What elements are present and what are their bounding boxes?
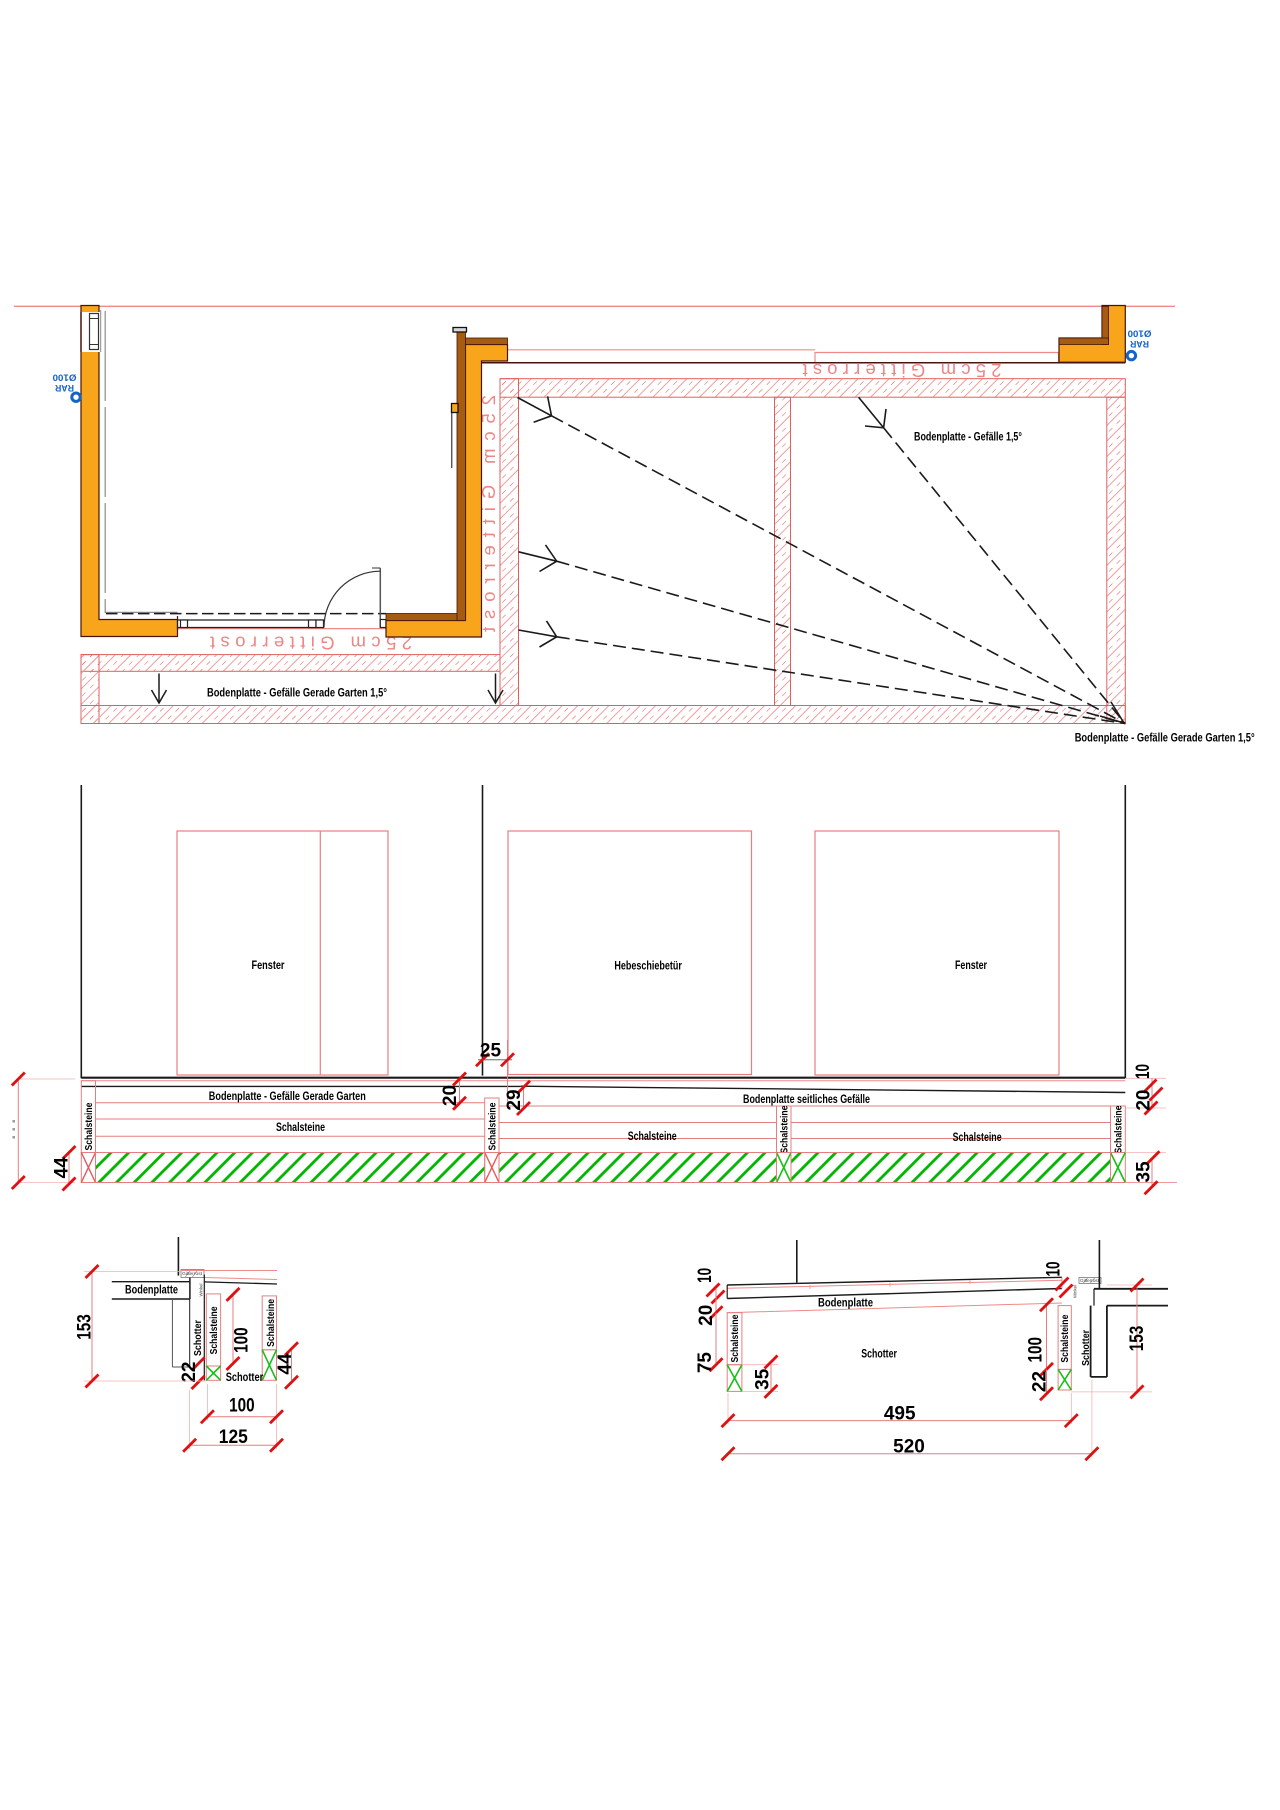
svg-text:Schalsteine: Schalsteine (208, 1306, 220, 1354)
svg-text:20: 20 (440, 1085, 461, 1106)
svg-text:20: 20 (696, 1305, 717, 1326)
svg-text:100: 100 (1026, 1337, 1047, 1363)
svg-text:Schalsteine: Schalsteine (1059, 1314, 1071, 1362)
svg-text:25cm Gitterrost: 25cm Gitterrost (210, 633, 412, 654)
svg-text:22: 22 (1029, 1371, 1050, 1392)
svg-text:125: 125 (219, 1427, 248, 1448)
svg-text:100: 100 (229, 1396, 255, 1417)
svg-text:Schotter: Schotter (861, 1347, 897, 1361)
svg-text:20: 20 (1133, 1090, 1154, 1111)
svg-text:Schalsteine: Schalsteine (1113, 1105, 1125, 1153)
svg-text:Schotter: Schotter (192, 1320, 204, 1356)
svg-text:Bodenplatte - Gefälle 1,5°: Bodenplatte - Gefälle 1,5° (914, 430, 1022, 444)
svg-text:Winkel: Winkel (199, 1284, 204, 1297)
svg-text:Schalsteine: Schalsteine (265, 1299, 277, 1347)
svg-text:RAR: RAR (1130, 339, 1149, 349)
svg-text:495: 495 (884, 1404, 916, 1425)
svg-text:153: 153 (1127, 1326, 1148, 1352)
svg-text:Fenster: Fenster (252, 958, 285, 972)
svg-text:Schalsteine: Schalsteine (778, 1105, 790, 1153)
svg-text:520: 520 (893, 1437, 925, 1458)
svg-text:Winkel: Winkel (1073, 1285, 1078, 1298)
svg-text:44: 44 (51, 1157, 72, 1179)
svg-text:10: 10 (1044, 1262, 1065, 1277)
svg-text:Schalsteine: Schalsteine (486, 1102, 498, 1150)
svg-text:Bodenplatte: Bodenplatte (125, 1283, 178, 1297)
svg-text:35: 35 (752, 1368, 773, 1390)
svg-text:Schalsteine: Schalsteine (276, 1120, 325, 1134)
svg-text:Bodenplatte - Gefälle Gerade G: Bodenplatte - Gefälle Gerade Garten (209, 1089, 366, 1103)
svg-text:Hebeschiebetür: Hebeschiebetür (614, 958, 682, 972)
svg-text:44: 44 (275, 1353, 296, 1375)
svg-text:100: 100 (231, 1327, 252, 1353)
svg-text:Bodenplatte seitliches Gefälle: Bodenplatte seitliches Gefälle (743, 1092, 870, 1106)
svg-text:25: 25 (480, 1041, 502, 1062)
svg-text:Schotter: Schotter (1080, 1330, 1092, 1366)
svg-text:Ø100: Ø100 (1128, 329, 1152, 339)
svg-text:RAR: RAR (55, 383, 74, 393)
svg-text:29: 29 (504, 1089, 525, 1110)
svg-text:75: 75 (695, 1352, 716, 1374)
svg-text:153: 153 (75, 1314, 96, 1340)
svg-text:35: 35 (1134, 1161, 1155, 1183)
svg-text:10: 10 (1133, 1064, 1154, 1079)
svg-text:10: 10 (695, 1268, 716, 1283)
svg-text:Schalsteine: Schalsteine (953, 1130, 1002, 1144)
svg-text:Schotter: Schotter (226, 1370, 264, 1384)
svg-text:Schalsteine: Schalsteine (83, 1102, 95, 1150)
svg-text:Bodenplatte - Gefälle Gerade G: Bodenplatte - Gefälle Gerade Garten 1,5° (207, 685, 387, 699)
svg-text:Gitterrost: Gitterrost (182, 1271, 203, 1276)
svg-text:Schalsteine: Schalsteine (729, 1314, 741, 1362)
svg-text:Ø100: Ø100 (53, 372, 77, 382)
svg-text:Bodenplatte - Gefälle Gerade G: Bodenplatte - Gefälle Gerade Garten 1,5° (1075, 730, 1255, 744)
svg-text:Fenster: Fenster (955, 958, 987, 972)
svg-text:22: 22 (179, 1362, 200, 1383)
svg-text:Schalsteine: Schalsteine (628, 1129, 677, 1143)
svg-text:Gitterrost: Gitterrost (1080, 1278, 1100, 1283)
svg-text:Bodenplatte: Bodenplatte (818, 1295, 873, 1309)
